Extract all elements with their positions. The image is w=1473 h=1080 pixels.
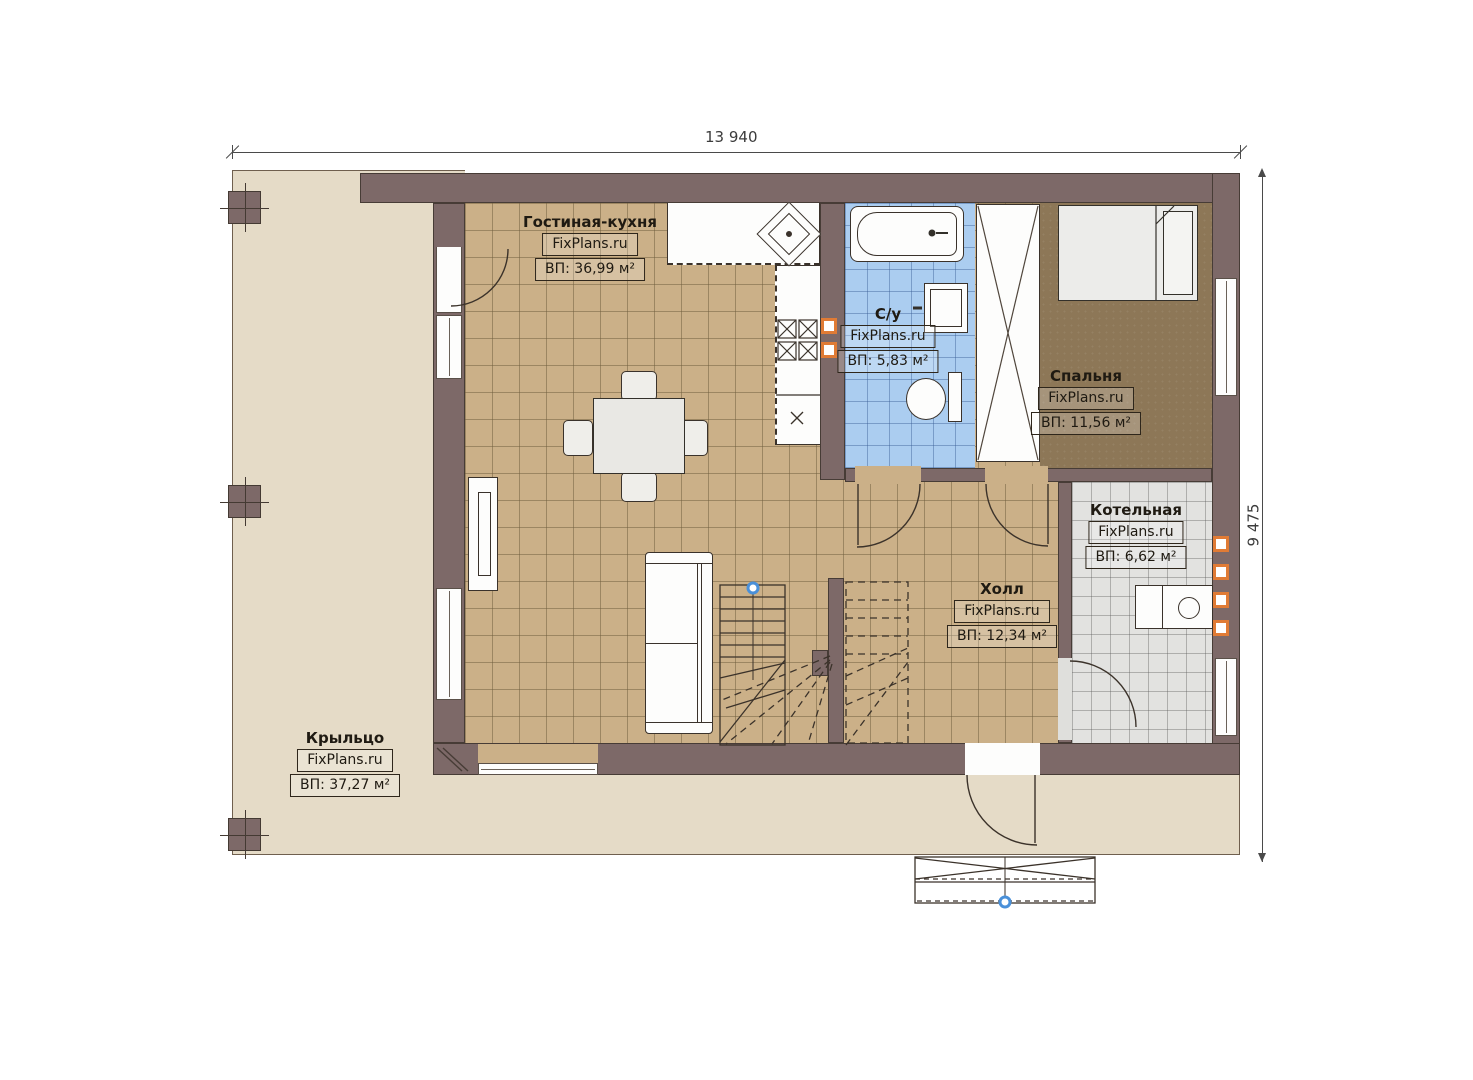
wall-stair-stub (812, 650, 828, 676)
room-name: Гостиная-кухня (523, 213, 657, 231)
watermark-box: FixPlans.ru (297, 749, 392, 772)
radiator-left-wall (468, 477, 498, 591)
wall-stair-core (828, 578, 844, 743)
toilet-tank (948, 372, 962, 422)
toilet-bowl (906, 378, 946, 420)
dining-table (593, 398, 685, 474)
bathtub (850, 206, 964, 262)
room-label-bedroom: Спальня FixPlans.ru ВП: 11,56 м² (1031, 367, 1141, 435)
dimension-arrow-up (1258, 168, 1266, 177)
room-name: Спальня (1050, 367, 1122, 385)
dimension-line-top (232, 152, 1240, 153)
cabinet (645, 552, 713, 734)
window-living-south (478, 763, 598, 775)
watermark-box: FixPlans.ru (1088, 521, 1183, 544)
bed (1058, 205, 1198, 301)
area-box: ВП: 36,99 м² (535, 258, 645, 281)
window-bedroom (1215, 278, 1237, 396)
room-label-boiler: Котельная FixPlans.ru ВП: 6,62 м² (1085, 501, 1186, 569)
room-label-bathroom: С/у FixPlans.ru ВП: 5,83 м² (837, 305, 938, 373)
porch-column (228, 191, 261, 224)
room-name: Холл (980, 580, 1024, 598)
vent-marker (821, 342, 837, 358)
porch-column (228, 485, 261, 518)
window-left-bottom (436, 588, 462, 700)
vent-marker (1213, 564, 1229, 580)
area-box: ВП: 6,62 м² (1085, 546, 1186, 569)
area-box: ВП: 5,83 м² (837, 350, 938, 373)
dimension-arrow-down (1258, 853, 1266, 862)
chair (621, 371, 657, 401)
vent-marker (1213, 536, 1229, 552)
bed-pillow (1163, 211, 1193, 295)
dimension-right-label: 9 475 (1244, 504, 1262, 547)
window-left-top (436, 315, 462, 379)
floor-plan-canvas: 13 940 9 475 (0, 0, 1473, 1080)
vent-marker (1213, 620, 1229, 636)
area-box: ВП: 37,27 м² (290, 774, 400, 797)
room-label-hall: Холл FixPlans.ru ВП: 12,34 м² (947, 580, 1057, 648)
bedroom-door-opening (985, 466, 1048, 484)
watermark-box: FixPlans.ru (542, 233, 637, 256)
entry-door-opening (436, 247, 462, 313)
room-label-living-kitchen: Гостиная-кухня FixPlans.ru ВП: 36,99 м² (523, 213, 657, 281)
chair (621, 472, 657, 502)
window-boiler (1215, 658, 1237, 736)
watermark-box: FixPlans.ru (954, 600, 1049, 623)
room-name: С/у (875, 305, 901, 323)
room-label-porch: Крыльцо FixPlans.ru ВП: 37,27 м² (290, 729, 400, 797)
dimension-top-label: 13 940 (705, 128, 758, 146)
room-name: Крыльцо (306, 729, 384, 747)
kitchen-counter-side (775, 265, 820, 445)
watermark-box: FixPlans.ru (840, 325, 935, 348)
area-box: ВП: 11,56 м² (1031, 412, 1141, 435)
vent-marker (821, 318, 837, 334)
vent-marker (1213, 592, 1229, 608)
entry-steps (915, 857, 1095, 903)
entrance-door-opening (965, 743, 1040, 775)
watermark-box: FixPlans.ru (1038, 387, 1133, 410)
bay-floor-strip (478, 744, 598, 764)
boiler-door-opening (1058, 658, 1072, 740)
room-name: Котельная (1090, 501, 1182, 519)
chair (563, 420, 593, 456)
bathroom-door-opening (855, 466, 921, 484)
wall-top (360, 173, 1240, 203)
boiler-unit (1135, 585, 1213, 629)
area-box: ВП: 12,34 м² (947, 625, 1057, 648)
porch-column (228, 818, 261, 851)
